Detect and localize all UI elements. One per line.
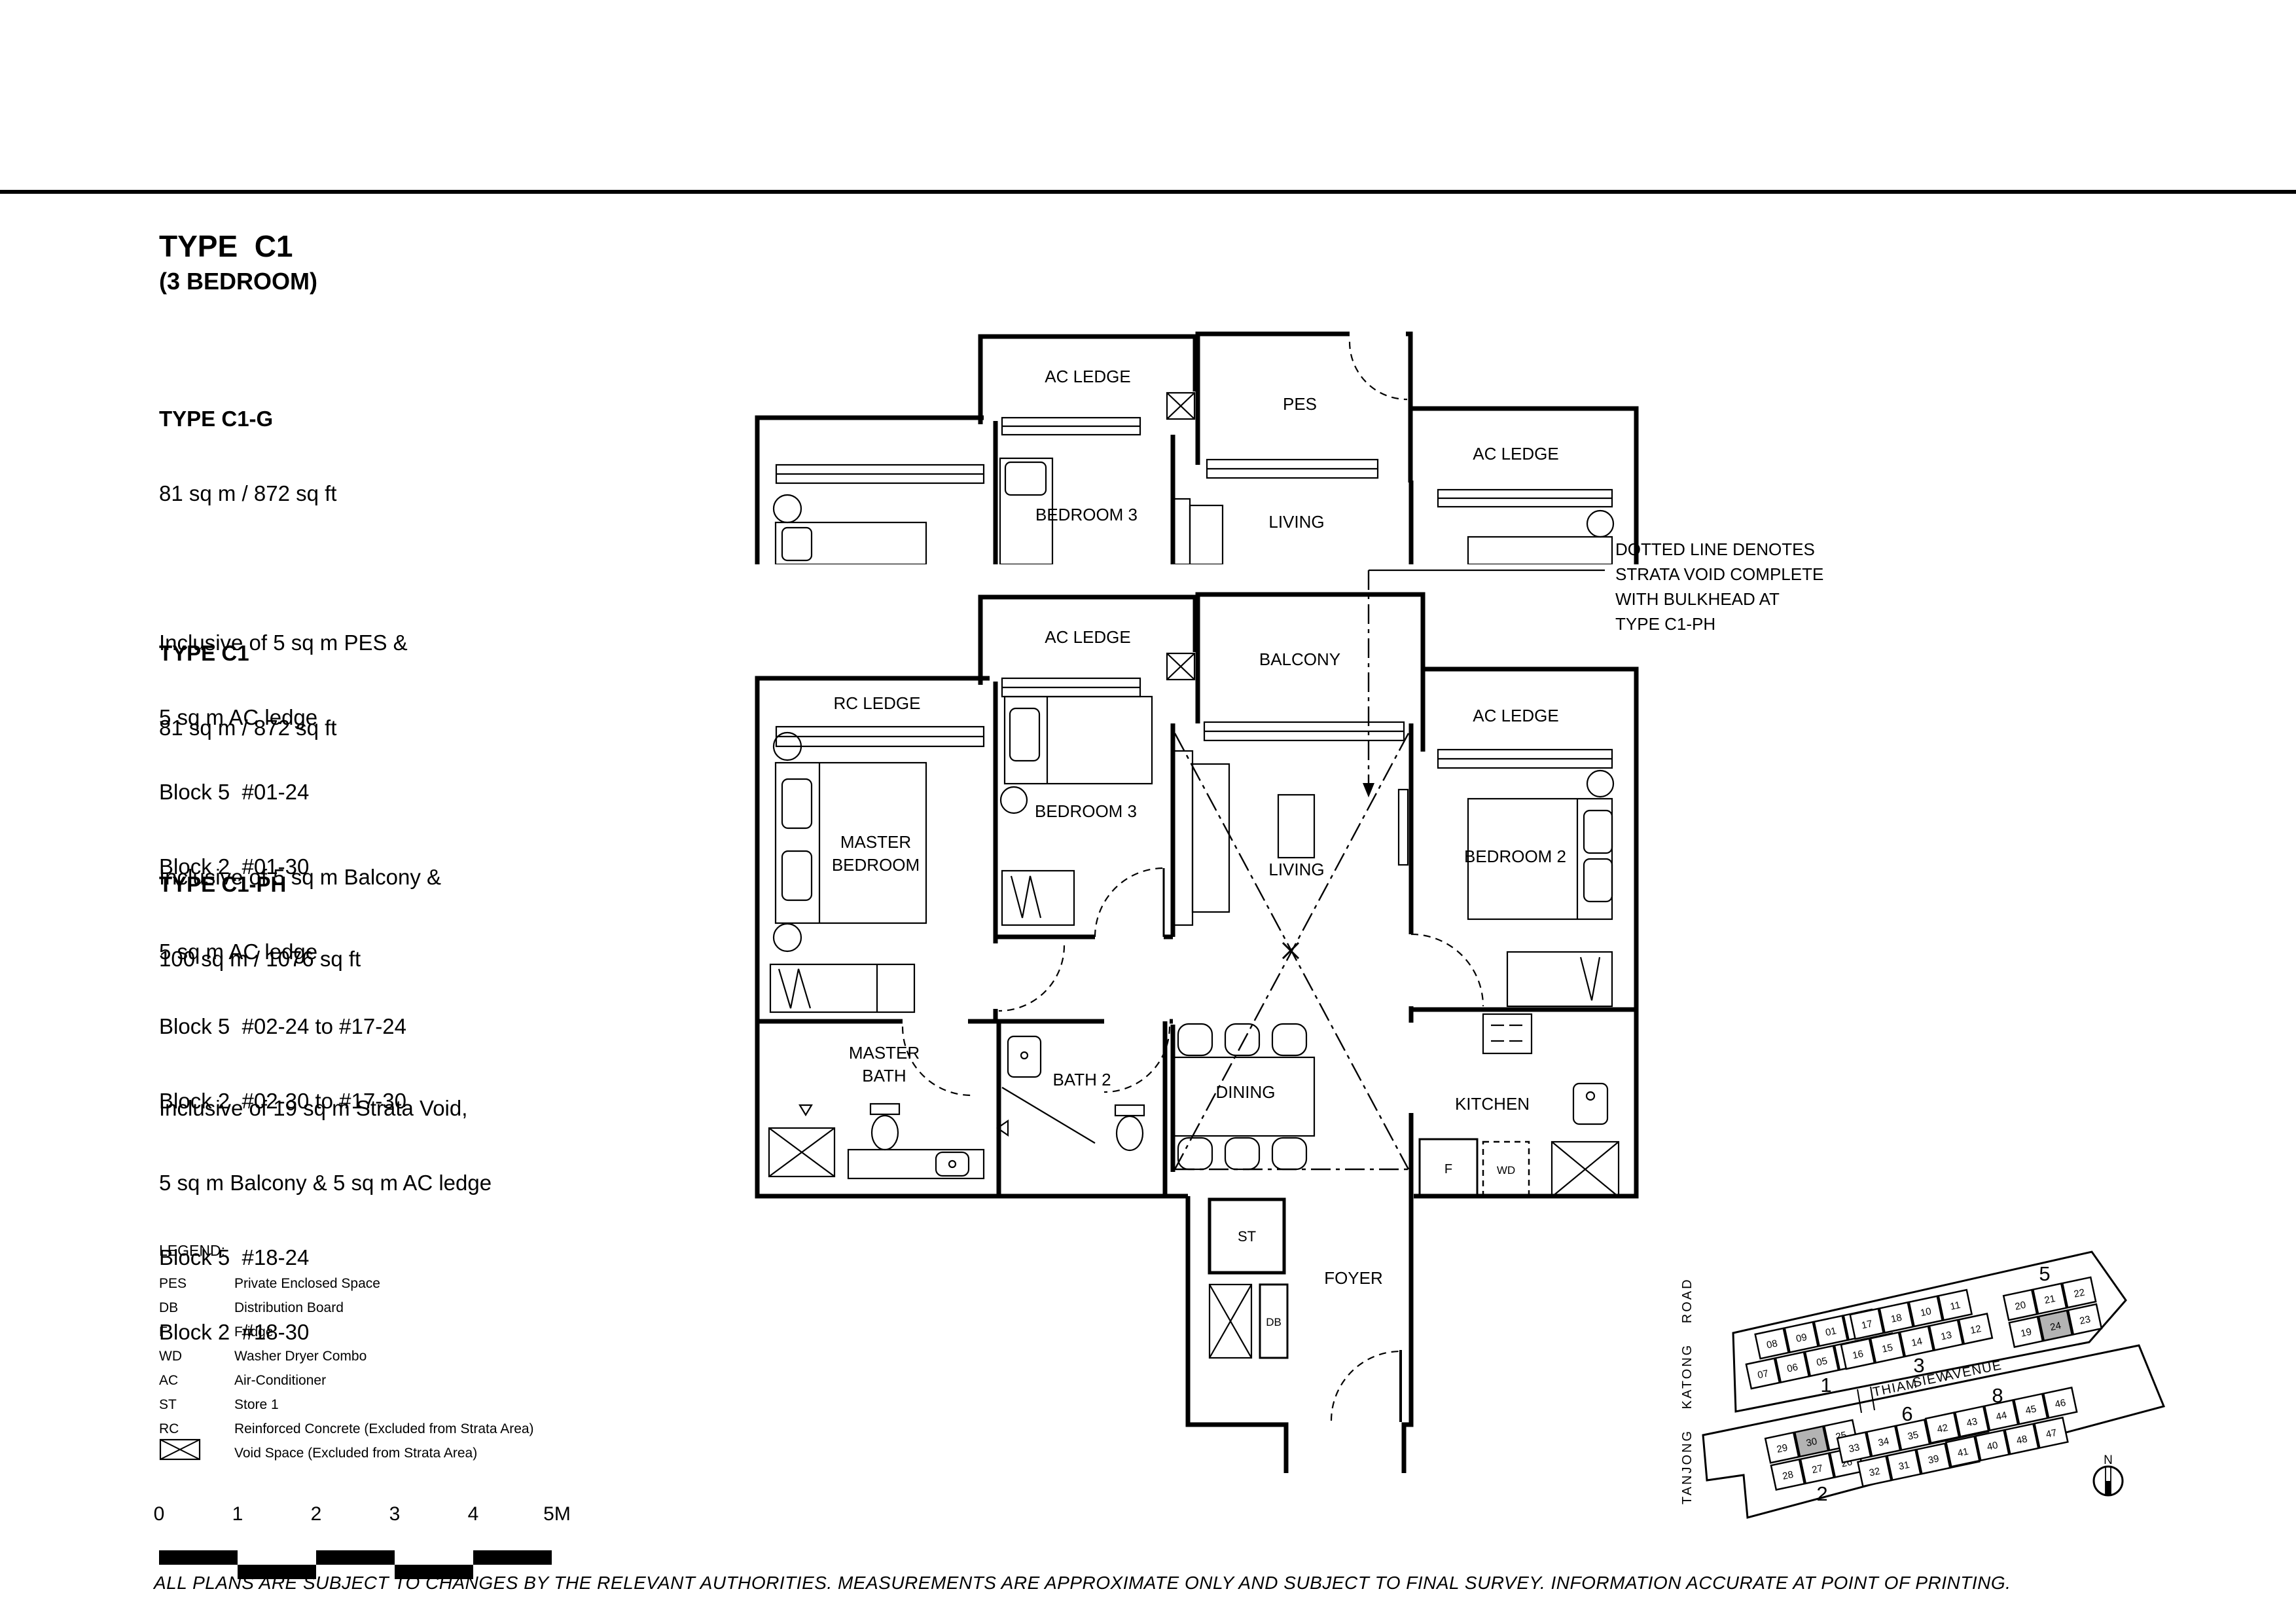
legend-desc: Distribution Board — [234, 1296, 344, 1320]
site-unit-number: 20 — [2014, 1300, 2027, 1313]
site-unit-number: 07 — [1757, 1368, 1770, 1381]
legend-abbr: ST — [159, 1393, 234, 1417]
legend-desc: Reinforced Concrete (Excluded from Strat… — [234, 1417, 534, 1441]
legend-abbr: F — [159, 1320, 234, 1344]
legend-desc: Fridge — [234, 1320, 274, 1344]
floor-plan-page: AC LEDGE PES AC LEDGE BEDROOM 3 LIVING — [0, 0, 2296, 1623]
site-block-label: 6 — [1901, 1402, 1912, 1425]
site-building-8: 424344454641404847 — [1926, 1387, 2083, 1470]
annotation-line: STRATA VOID COMPLETE — [1615, 562, 1823, 587]
legend-row: ST Store 1 — [159, 1393, 534, 1417]
page-title: TYPE C1 — [159, 230, 317, 262]
site-unit-number: 33 — [1848, 1442, 1861, 1455]
scale-segment — [159, 1550, 238, 1565]
room-label-balcony: BALCONY — [1259, 649, 1340, 669]
door-arc — [903, 868, 1483, 1421]
room-label-bedroom3: BEDROOM 3 — [1035, 801, 1137, 821]
legend-row: F Fridge — [159, 1320, 534, 1344]
site-plan: THIAM SIEW AVENUE TANJONG KATONG ROAD N … — [1680, 1252, 2164, 1518]
title-block: TYPE C1 (3 BEDROOM) — [159, 230, 317, 296]
site-block-label: 3 — [1913, 1354, 1924, 1377]
site-unit-number: 01 — [1825, 1325, 1838, 1338]
site-unit-number: 27 — [1811, 1463, 1824, 1476]
furniture-bedroom2 — [1468, 771, 1613, 1006]
variant-area: 100 sq m / 1076 sq ft — [159, 947, 492, 972]
site-unit-number: 40 — [1986, 1440, 1999, 1453]
legend-row: Void Space (Excluded from Strata Area) — [159, 1441, 534, 1465]
legend-desc: Air-Conditioner — [234, 1368, 326, 1393]
north-arrow-icon: N — [2094, 1453, 2123, 1495]
site-unit-number: 10 — [1920, 1305, 1933, 1319]
annotation-line: WITH BULKHEAD AT — [1615, 587, 1823, 611]
variant-name: TYPE C1-G — [159, 407, 408, 431]
site-unit-number: 48 — [2015, 1433, 2028, 1446]
legend-row: PES Private Enclosed Space — [159, 1271, 534, 1296]
variant-detail: 5 sq m Balcony & 5 sq m AC ledge — [159, 1171, 492, 1195]
room-label-bedroom2: BEDROOM 2 — [1464, 847, 1566, 866]
scale-label: 3 — [389, 1503, 401, 1525]
legend-row: DB Distribution Board — [159, 1296, 534, 1320]
site-unit-number: 12 — [1969, 1323, 1982, 1336]
site-unit-number: 43 — [1965, 1416, 1979, 1429]
site-building-5: 202122192423 — [2003, 1277, 2102, 1347]
site-block-label: 5 — [2039, 1262, 2050, 1285]
scale-segment — [473, 1550, 552, 1565]
room-label-living: LIVING — [1268, 512, 1324, 532]
legend-title: LEGEND: — [159, 1242, 534, 1260]
site-unit-number: 16 — [1852, 1348, 1865, 1361]
north-label: N — [2104, 1453, 2113, 1467]
site-unit-number: 41 — [1956, 1446, 1969, 1459]
site-unit-number: 28 — [1782, 1469, 1795, 1482]
void-space-icon — [159, 1438, 202, 1461]
annotation-line: TYPE C1-PH — [1615, 611, 1823, 636]
room-label-store: ST — [1238, 1228, 1256, 1245]
room-label-master-bath: BATH — [862, 1066, 906, 1085]
site-unit-number: 08 — [1766, 1338, 1779, 1351]
variant-name: TYPE C1-PH — [159, 872, 492, 897]
disclaimer-text: ALL PLANS ARE SUBJECT TO CHANGES BY THE … — [154, 1573, 2011, 1594]
site-unit-number: 46 — [2054, 1397, 2067, 1410]
site-unit-number: 14 — [1910, 1336, 1924, 1349]
room-label-foyer: FOYER — [1324, 1268, 1383, 1288]
room-label-ac-ledge: AC LEDGE — [1045, 627, 1131, 647]
room-label-ac-ledge: AC LEDGE — [1473, 444, 1559, 464]
scale-segment — [316, 1550, 395, 1565]
annotation-line: DOTTED LINE DENOTES — [1615, 537, 1823, 562]
room-label-wd: WD — [1497, 1164, 1515, 1176]
room-label-master-bath: MASTER — [849, 1043, 920, 1063]
room-label-rc-ledge: RC LEDGE — [834, 693, 921, 713]
room-label-ac-ledge: AC LEDGE — [1045, 367, 1131, 386]
variant-area: 81 sq m / 872 sq ft — [159, 716, 441, 740]
fixtures-bath2 — [997, 1036, 1144, 1150]
legend-desc: Void Space (Excluded from Strata Area) — [234, 1441, 477, 1465]
room-label-pes: PES — [1283, 394, 1317, 414]
scale-label: 2 — [311, 1503, 322, 1525]
site-unit-number: 34 — [1877, 1436, 1890, 1449]
room-label-master-bedroom: BEDROOM — [832, 855, 920, 875]
scale-bar: 0 1 2 3 4 5M — [159, 1503, 565, 1582]
site-unit-number: 15 — [1881, 1342, 1894, 1355]
void-shaft-box — [1167, 393, 1194, 419]
site-block-label: 1 — [1820, 1374, 1831, 1396]
legend: LEGEND: PES Private Enclosed Space DB Di… — [159, 1242, 534, 1465]
legend-desc: Store 1 — [234, 1393, 279, 1417]
room-label-ac-ledge: AC LEDGE — [1473, 706, 1559, 725]
site-unit-number: 24 — [2049, 1320, 2062, 1333]
site-unit-number: 44 — [1995, 1410, 2008, 1423]
floor-plan-c1-main: AC LEDGE BALCONY AC LEDGE RC LEDGE MASTE… — [757, 570, 1636, 1473]
page-subtitle: (3 BEDROOM) — [159, 267, 317, 296]
site-unit-number: 35 — [1907, 1429, 1920, 1442]
legend-desc: Private Enclosed Space — [234, 1271, 380, 1296]
site-unit-number: 39 — [1927, 1453, 1940, 1466]
site-unit-number: 18 — [1890, 1312, 1903, 1325]
site-block-label: 2 — [1816, 1482, 1827, 1505]
room-label-living: LIVING — [1268, 860, 1324, 879]
site-unit-number: 13 — [1940, 1330, 1953, 1343]
road-label-tanjong-katong: TANJONG KATONG ROAD — [1680, 1277, 1695, 1504]
site-unit-number: 09 — [1795, 1332, 1808, 1345]
room-label-bedroom3: BEDROOM 3 — [1035, 505, 1138, 524]
legend-row: AC Air-Conditioner — [159, 1368, 534, 1393]
void-cross-mark — [1283, 943, 1299, 958]
site-unit-number: 31 — [1897, 1459, 1910, 1472]
variant-area: 81 sq m / 872 sq ft — [159, 481, 408, 506]
room-label-kitchen: KITCHEN — [1455, 1094, 1530, 1114]
legend-abbr: DB — [159, 1296, 234, 1320]
leader-arrowhead — [1363, 783, 1374, 797]
variant-name: TYPE C1 — [159, 641, 441, 666]
room-label-dining: DINING — [1216, 1082, 1276, 1102]
fixtures-master-bath — [800, 1104, 984, 1178]
scale-label: 1 — [232, 1503, 243, 1525]
furniture-living — [1173, 751, 1408, 925]
site-unit-number: 29 — [1776, 1442, 1789, 1455]
room-label-master-bedroom: MASTER — [840, 832, 911, 852]
legend-desc: Washer Dryer Combo — [234, 1344, 367, 1368]
void-space-symbol — [159, 1438, 234, 1469]
legend-abbr: AC — [159, 1368, 234, 1393]
site-unit-number: 47 — [2045, 1427, 2058, 1440]
legend-abbr: PES — [159, 1271, 234, 1296]
site-unit-number: 21 — [2043, 1293, 2056, 1306]
site-unit-number: 30 — [1805, 1436, 1818, 1449]
strata-void-annotation: DOTTED LINE DENOTES STRATA VOID COMPLETE… — [1615, 537, 1823, 636]
site-unit-number: 19 — [2020, 1326, 2033, 1340]
site-unit-number: 06 — [1786, 1362, 1799, 1375]
site-unit-number: 32 — [1868, 1466, 1881, 1479]
variant-detail: Inclusive of 19 sq m Strata Void, — [159, 1096, 492, 1121]
pes-door-arc — [1350, 342, 1407, 399]
legend-row: WD Washer Dryer Combo — [159, 1344, 534, 1368]
site-unit-number: 45 — [2024, 1404, 2037, 1417]
room-label-bath2: BATH 2 — [1052, 1070, 1111, 1089]
site-unit-number: 42 — [1936, 1422, 1949, 1435]
site-unit-number: 22 — [2073, 1287, 2086, 1300]
floor-plan-c1g-partial: AC LEDGE PES AC LEDGE BEDROOM 3 LIVING — [757, 334, 1636, 564]
scale-label: 0 — [154, 1503, 165, 1525]
site-unit-number: 17 — [1861, 1318, 1874, 1331]
room-label-fridge: F — [1444, 1162, 1452, 1176]
scale-label: 4 — [468, 1503, 479, 1525]
room-label-db: DB — [1266, 1316, 1282, 1328]
site-block-label: 8 — [1992, 1384, 2003, 1407]
site-unit-number: 05 — [1816, 1355, 1829, 1368]
site-unit-number: 23 — [2079, 1314, 2092, 1327]
scale-label: 5M — [543, 1503, 571, 1525]
legend-abbr: WD — [159, 1344, 234, 1368]
